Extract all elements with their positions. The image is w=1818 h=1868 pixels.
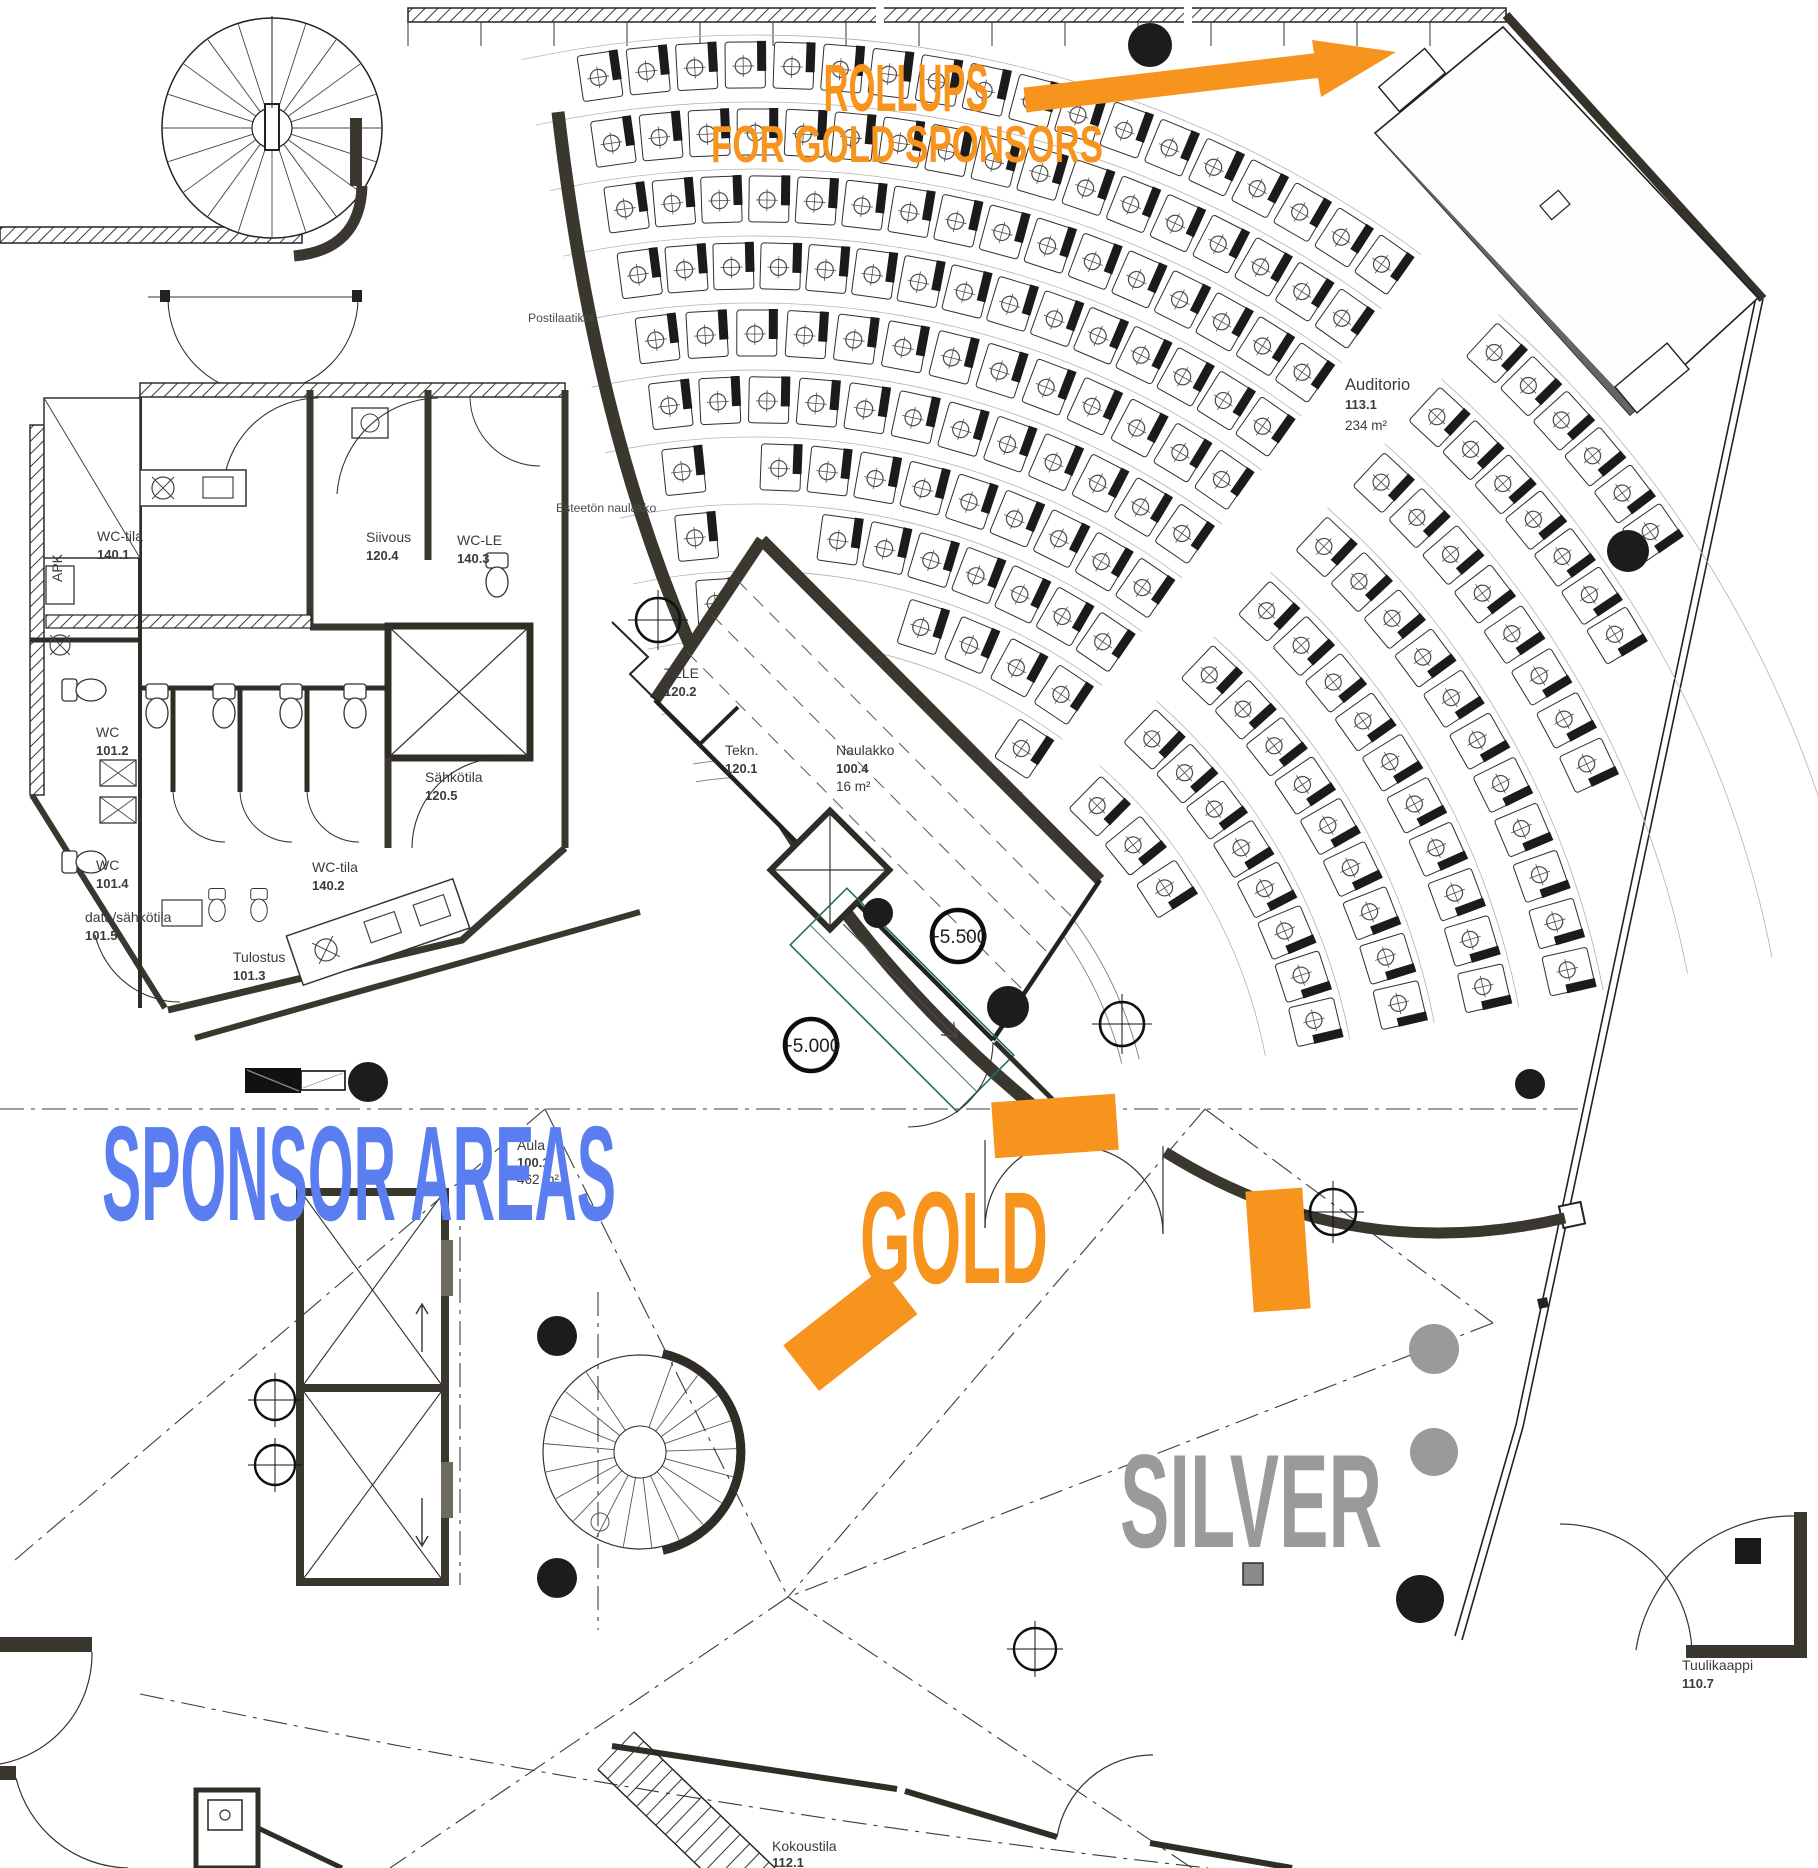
auditorium-seat — [942, 263, 993, 318]
auditorium-seat — [986, 275, 1039, 332]
crosshair-icon — [628, 590, 688, 650]
toilet-icon — [146, 684, 168, 728]
auditorium-seat — [897, 598, 950, 655]
plan-legend — [245, 1068, 345, 1093]
toilet-icon — [209, 889, 226, 922]
svg-text:+5.500: +5.500 — [929, 927, 988, 948]
spiral-stair-bottom — [543, 1354, 741, 1551]
toilet-icon — [344, 684, 366, 728]
floor-plan-linework: Postilaatikot Esteetön naulakko WC-tila … — [0, 6, 1818, 1868]
auditorium-seat — [795, 176, 839, 226]
auditorium-seat — [675, 41, 718, 90]
room-number: 101.3 — [233, 968, 266, 983]
auditorium-seat — [737, 309, 778, 356]
auditorium-seat — [945, 473, 999, 530]
rollups-arrow-icon — [1025, 40, 1396, 100]
auditorium-seat — [989, 489, 1045, 548]
auditorium-seat — [577, 49, 624, 101]
auditorium-seat — [1288, 997, 1343, 1048]
room-number: 140.2 — [312, 878, 345, 893]
gold-label: GOLD — [860, 1164, 1048, 1311]
auditorium-seat — [725, 41, 766, 88]
room-label: TELE — [664, 665, 699, 681]
window-mullions — [408, 22, 1430, 46]
crosshair-icon — [1302, 1181, 1364, 1243]
silver-sponsor-spot-2 — [1410, 1428, 1458, 1476]
auditorium-seat — [785, 309, 829, 358]
room-label: Siivous — [366, 529, 411, 545]
room-number: 120.1 — [725, 761, 758, 776]
gold-sponsor-spot-3 — [1245, 1188, 1310, 1313]
column-dot — [1607, 530, 1649, 572]
auditorium-seat — [1030, 289, 1084, 347]
auditorium-seat — [748, 376, 790, 424]
crosshair-icon — [248, 1438, 302, 1492]
room-number: 120.2 — [664, 684, 697, 699]
column-dot — [537, 1316, 577, 1356]
label-esteeton-naulakko: Esteetön naulakko — [556, 501, 657, 515]
auditorium-seat — [853, 451, 902, 505]
auditorium-seat — [590, 115, 637, 167]
room-number: 140.1 — [97, 547, 130, 562]
room-area: 16 m² — [836, 779, 871, 794]
room-number: 113.1 — [1345, 397, 1377, 412]
column-dot — [348, 1062, 388, 1102]
auditorium-seat — [1428, 867, 1486, 922]
auditorium-seat — [1068, 232, 1123, 290]
room-number: 140.3 — [457, 551, 490, 566]
auditorium-seat — [604, 181, 651, 233]
elevator-block — [300, 1192, 453, 1582]
auditorium-seat — [1359, 932, 1416, 985]
auditorium-seat — [1024, 217, 1078, 274]
label-postilaatikot: Postilaatikot — [528, 311, 594, 325]
crosshair-icon — [248, 1373, 302, 1427]
auditorium-seat — [975, 342, 1028, 399]
auditorium-seat — [1529, 898, 1586, 950]
auditorium-seat — [881, 320, 930, 374]
auditorium-seat — [951, 546, 1006, 605]
auditorium-seat — [937, 401, 989, 457]
column-dot — [987, 986, 1029, 1028]
room-label: Sähkötila — [425, 769, 483, 785]
room-label: Tulostus — [233, 949, 285, 965]
wc-block — [30, 383, 640, 1038]
auditorium-seat — [701, 175, 744, 223]
auditorium-seat — [979, 204, 1031, 260]
auditorium-seat — [1257, 905, 1316, 961]
room-label: Kokoustila — [772, 1838, 837, 1854]
room-number: 100.4 — [836, 761, 869, 776]
auditorium-seat — [760, 443, 803, 491]
stair-run — [598, 1732, 775, 1868]
auditorium-seat — [933, 193, 983, 248]
auditorium-seat — [1066, 376, 1123, 436]
rollups-label-line1: ROLLUPS — [824, 51, 989, 126]
auditorium-seat — [665, 243, 709, 293]
column-dot — [1515, 1069, 1545, 1099]
auditorium-seat — [713, 242, 755, 290]
auditorium-seat — [626, 44, 671, 95]
auditorium-seat — [1513, 849, 1571, 903]
auditorium-seat — [1343, 886, 1402, 941]
bottom-left-walls — [0, 1637, 342, 1868]
auditorium-seat — [1457, 963, 1512, 1013]
auditorium-seat — [807, 445, 853, 496]
toilet-icon — [213, 684, 235, 728]
silver-label: SILVER — [1120, 1428, 1382, 1576]
auditorium-seat — [652, 177, 697, 227]
auditorium-seat — [1188, 137, 1245, 197]
room-number: 101.5 — [85, 928, 118, 943]
auditorium-seat — [1494, 802, 1553, 858]
room-number: 110.7 — [1682, 1676, 1714, 1691]
auditorium-seat — [686, 309, 730, 358]
column-dot — [1396, 1575, 1444, 1623]
room-label: Tekn. — [725, 742, 758, 758]
auditorium-seat — [1022, 358, 1077, 417]
auditorium-seat — [900, 460, 951, 516]
auditorium-seat — [888, 185, 936, 238]
auditorium-seat — [1106, 175, 1161, 234]
toilet-icon — [62, 679, 106, 701]
auditorium-seat — [842, 179, 888, 230]
room-label: WC-tila — [312, 859, 358, 875]
auditorium-seat — [1144, 118, 1200, 177]
column-dot — [863, 898, 893, 928]
auditorium-seat — [897, 254, 946, 308]
auditorium-seat — [1444, 915, 1501, 968]
auditorium-seat — [1559, 737, 1619, 794]
auditorium-seat — [1100, 101, 1155, 159]
room-label-apk: APK — [49, 553, 65, 582]
room-label: WC — [96, 724, 119, 740]
auditorium-seat — [1473, 756, 1533, 814]
room-number: 101.2 — [96, 743, 129, 758]
auditorium-seat — [1028, 432, 1084, 491]
elevation-marker-lower: +5.000 — [782, 1019, 841, 1071]
room-label: WC — [96, 857, 119, 873]
auditorium-seat — [1323, 841, 1383, 898]
svg-text:+5.000: +5.000 — [782, 1036, 841, 1057]
auditorium-seat — [699, 376, 742, 425]
auditorium-seat — [1373, 980, 1428, 1031]
spiral-stair-top — [162, 16, 382, 256]
auditorium-seat — [749, 175, 791, 223]
column-dot — [537, 1558, 577, 1598]
floor-plan-svg: Postilaatikot Esteetön naulakko WC-tila … — [0, 0, 1818, 1868]
toilet-icon — [280, 684, 302, 728]
auditorium-seat — [1069, 775, 1131, 837]
gold-sponsor-spot-1 — [991, 1094, 1119, 1159]
auditorium-seat — [1110, 398, 1168, 459]
auditorium-seat — [1449, 712, 1510, 771]
crosshair-icon — [1007, 1621, 1063, 1677]
room-number: 112.1 — [772, 1855, 804, 1868]
auditorium-seat — [773, 41, 816, 89]
auditorium-seat — [844, 382, 891, 435]
column-dot — [1128, 23, 1172, 67]
auditorium-seat — [983, 415, 1037, 473]
auditorium-seat — [639, 110, 684, 161]
auditorium-seat — [862, 520, 912, 575]
auditorium-seat — [851, 248, 898, 300]
auditorium-seat — [661, 445, 707, 496]
auditorium-seat — [1542, 947, 1597, 997]
silver-sponsor-spot-1 — [1409, 1324, 1459, 1374]
room-area: 234 m² — [1345, 418, 1388, 433]
auditorium-seat — [760, 242, 802, 290]
auditorium-seat — [635, 312, 681, 364]
rollups-label-line2: FOR GOLD SPONSORS — [711, 116, 1103, 174]
auditorium-seat — [617, 247, 664, 299]
toilet-icon — [251, 889, 268, 922]
auditorium-seat — [907, 531, 960, 588]
auditorium-seat — [891, 389, 941, 444]
auditorium-seat — [806, 243, 851, 293]
auditorium-seat — [990, 637, 1048, 698]
auditorium-seat — [1536, 691, 1597, 749]
auditorium-seat — [675, 511, 720, 562]
room-label: WC-LE — [457, 532, 502, 548]
auditorium-seat — [817, 513, 864, 565]
auditorium-seat — [833, 313, 879, 365]
auditorium-seat — [929, 329, 980, 385]
room-label: Tuulikaappi — [1682, 1657, 1753, 1673]
room-label: Auditorio — [1345, 376, 1410, 394]
auditorium-seat — [1275, 950, 1332, 1004]
sponsor-areas-label: SPONSOR AREAS — [102, 1098, 616, 1249]
auditorium-seat — [796, 377, 841, 427]
bottom-center-walls — [598, 1732, 1292, 1868]
auditorium-seat — [1387, 776, 1448, 834]
auditorium-seat — [1409, 821, 1469, 878]
floor-plan-page: Postilaatikot Esteetön naulakko WC-tila … — [0, 0, 1818, 1868]
room-number: 101.4 — [96, 876, 129, 891]
vestibule-doors — [148, 290, 362, 394]
room-label: Naulakko — [836, 742, 895, 758]
room-label: WC-tila — [97, 528, 143, 544]
auditorium-seat — [648, 379, 694, 430]
auditorium-seat — [1105, 815, 1167, 876]
room-number: 120.4 — [366, 548, 399, 563]
room-number: 120.5 — [425, 788, 458, 803]
auditorium-seat — [944, 615, 1000, 674]
room-label: data/sähkötila — [85, 909, 172, 925]
